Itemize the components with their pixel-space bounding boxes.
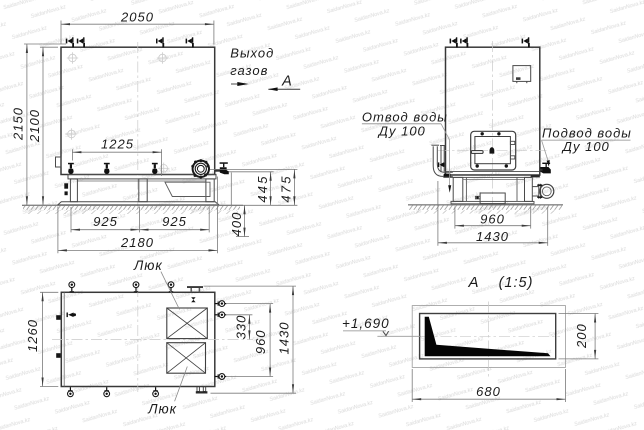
svg-text:А: А xyxy=(281,74,293,90)
svg-text:Люк: Люк xyxy=(133,258,163,273)
svg-text:Люк: Люк xyxy=(147,402,177,417)
svg-text:газов: газов xyxy=(230,63,268,78)
svg-text:400: 400 xyxy=(229,212,244,237)
svg-text:1430: 1430 xyxy=(476,229,509,244)
svg-text:Выход: Выход xyxy=(230,46,274,61)
svg-text:960: 960 xyxy=(480,212,505,227)
svg-text:Ду 100: Ду 100 xyxy=(377,124,426,139)
svg-text:330: 330 xyxy=(234,315,249,340)
svg-text:(1:5): (1:5) xyxy=(499,275,534,291)
svg-text:1225: 1225 xyxy=(101,137,134,152)
svg-text:925: 925 xyxy=(93,214,118,229)
svg-text:2150: 2150 xyxy=(11,107,26,141)
svg-text:960: 960 xyxy=(253,329,268,354)
svg-text:Ду 100: Ду 100 xyxy=(561,139,610,154)
svg-text:+1,690: +1,690 xyxy=(342,316,390,331)
svg-text:475: 475 xyxy=(279,174,294,202)
svg-text:1260: 1260 xyxy=(25,319,40,352)
svg-text:680: 680 xyxy=(476,384,501,399)
svg-text:2050: 2050 xyxy=(120,10,154,25)
svg-text:445: 445 xyxy=(255,174,270,202)
svg-text:200: 200 xyxy=(574,323,589,349)
svg-text:2100: 2100 xyxy=(27,109,42,143)
svg-text:925: 925 xyxy=(162,214,187,229)
svg-text:1430: 1430 xyxy=(276,322,291,355)
svg-text:Отвод воды: Отвод воды xyxy=(362,109,448,124)
svg-text:2180: 2180 xyxy=(120,235,154,250)
svg-text:А: А xyxy=(467,274,479,291)
